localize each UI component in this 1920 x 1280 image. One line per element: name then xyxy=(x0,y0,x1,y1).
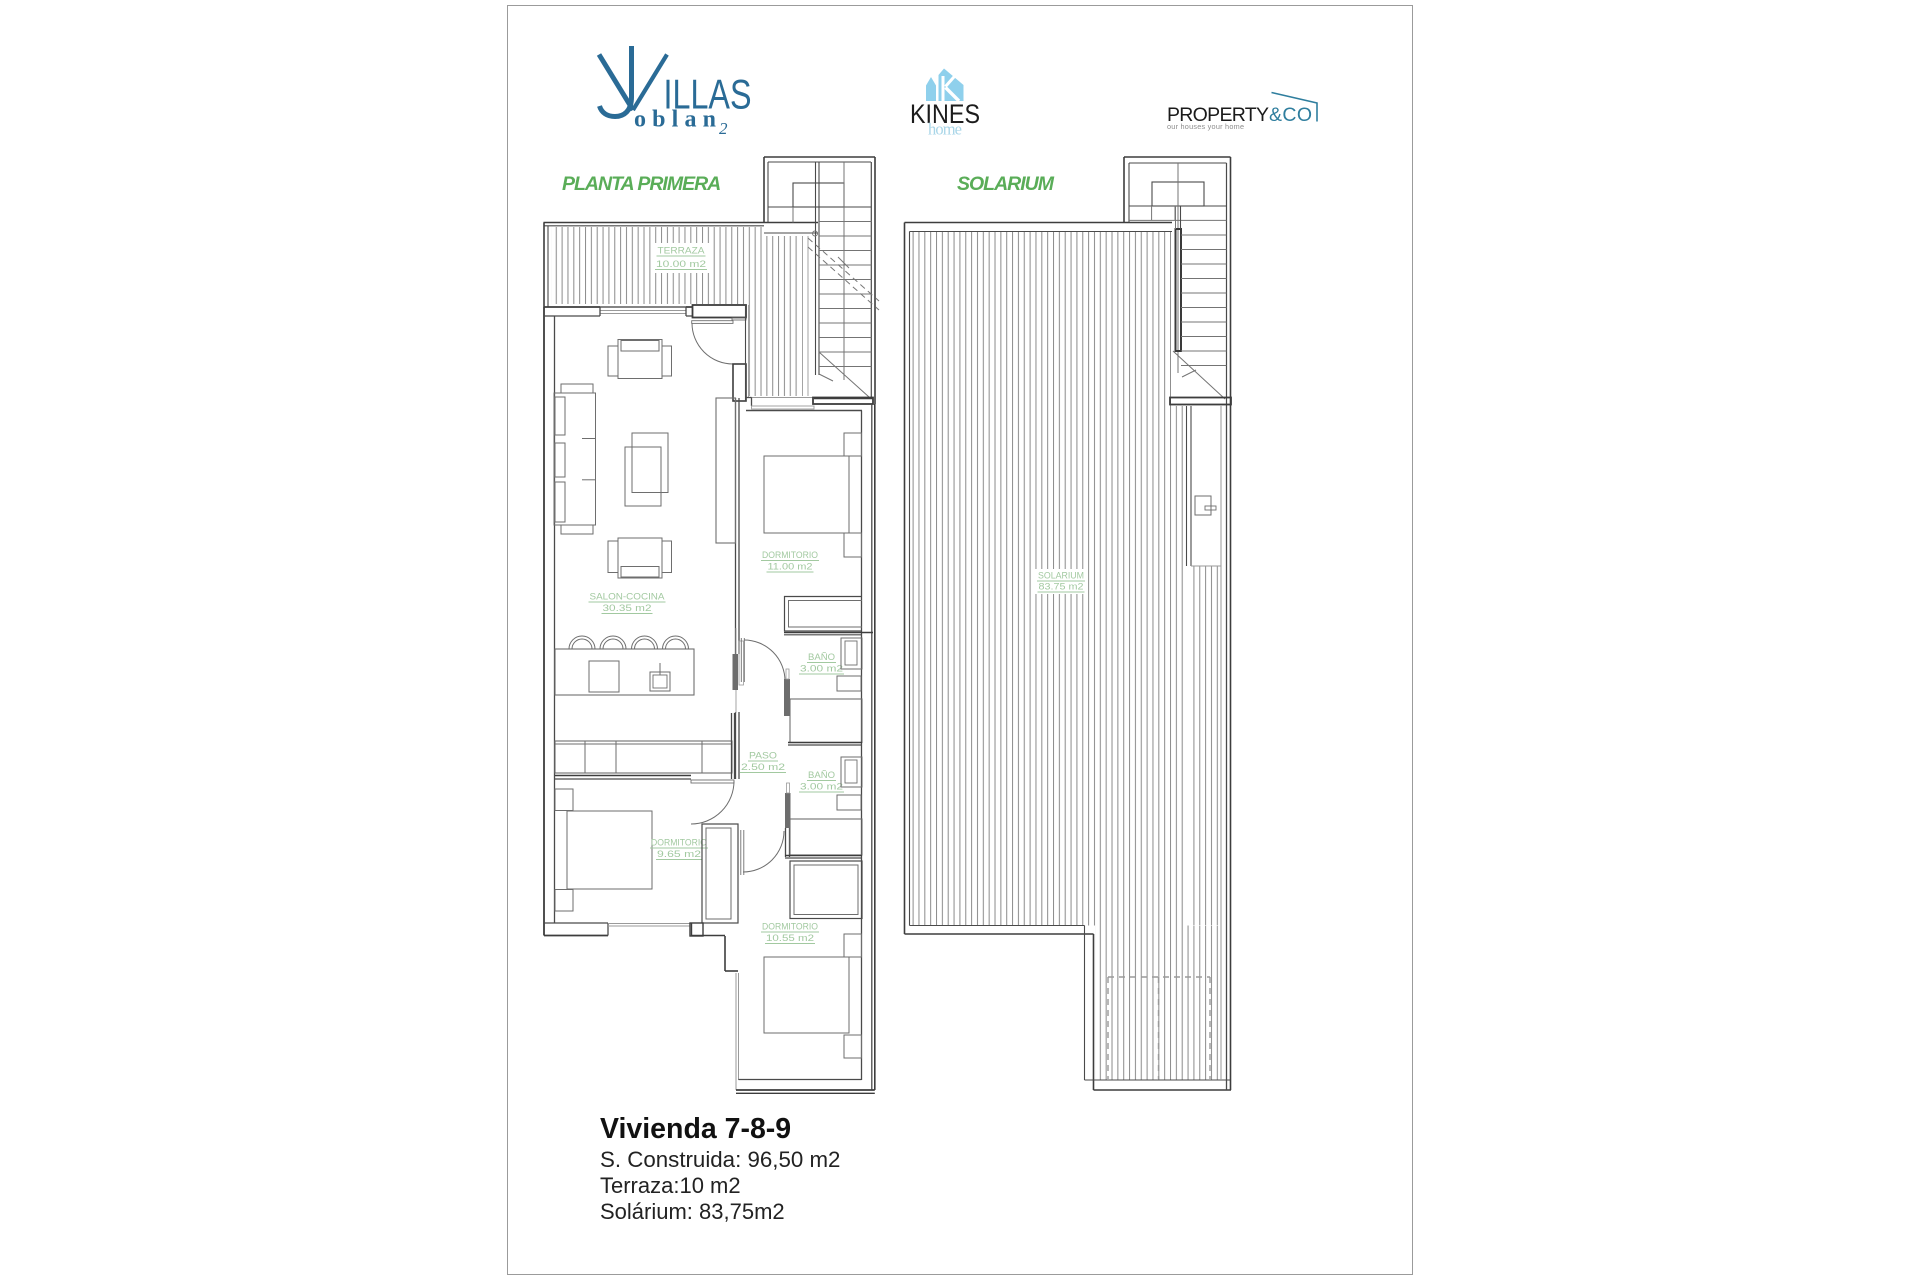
svg-text:DORMITORIO: DORMITORIO xyxy=(762,922,818,932)
svg-text:10.55 m2: 10.55 m2 xyxy=(766,933,814,943)
svg-text:DORMITORIO: DORMITORIO xyxy=(762,550,818,560)
svg-text:2.50 m2: 2.50 m2 xyxy=(741,762,785,772)
svg-text:BAÑO: BAÑO xyxy=(808,770,835,780)
svg-text:SOLARIUM: SOLARIUM xyxy=(1038,571,1084,581)
svg-text:SALON-COCINA: SALON-COCINA xyxy=(590,592,666,602)
svg-text:3.00 m2: 3.00 m2 xyxy=(800,664,843,674)
svg-text:11.00 m2: 11.00 m2 xyxy=(768,562,813,572)
svg-text:9.65 m2: 9.65 m2 xyxy=(657,849,701,859)
svg-text:10.00 m2: 10.00 m2 xyxy=(656,259,706,269)
svg-text:PASO: PASO xyxy=(749,751,777,761)
svg-text:TERRAZA: TERRAZA xyxy=(658,246,706,256)
svg-text:3.00 m2: 3.00 m2 xyxy=(800,782,843,792)
svg-text:83.75 m2: 83.75 m2 xyxy=(1039,582,1084,592)
svg-text:BAÑO: BAÑO xyxy=(808,652,835,662)
svg-text:DORMITORIO: DORMITORIO xyxy=(651,838,707,848)
svg-text:30.35 m2: 30.35 m2 xyxy=(603,603,652,613)
